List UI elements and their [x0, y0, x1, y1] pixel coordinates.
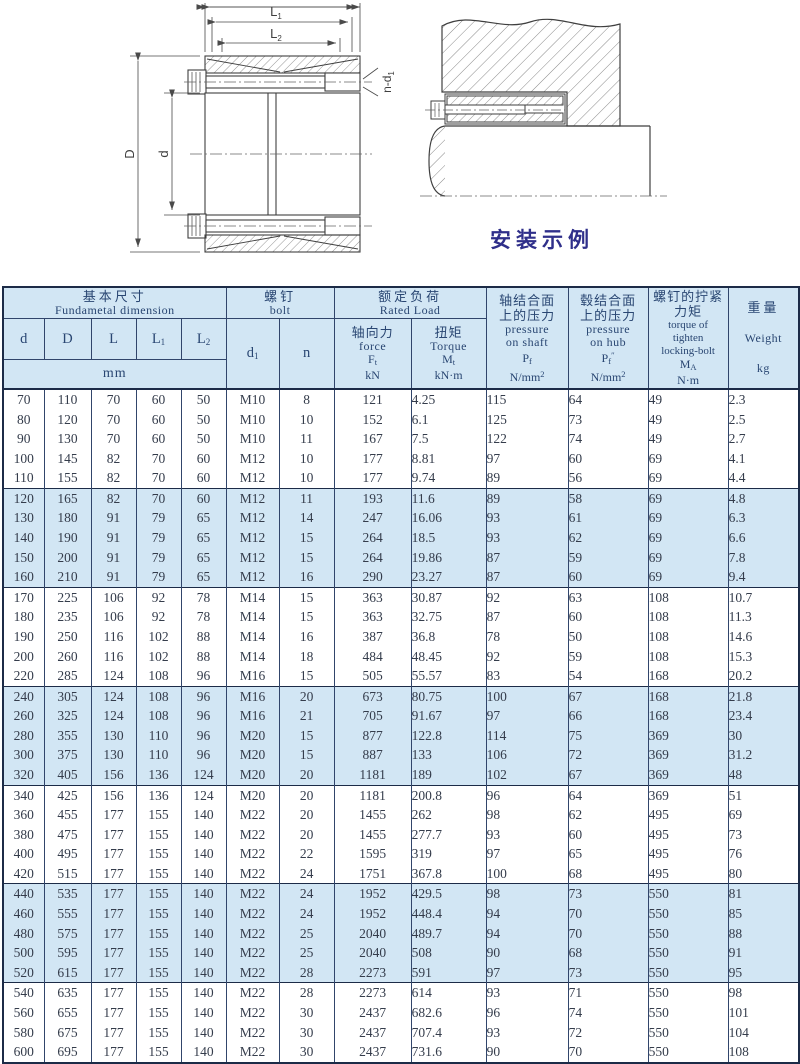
table-cell: 60 [136, 429, 181, 449]
table-cell: 91 [91, 567, 136, 587]
table-cell: 495 [648, 825, 728, 845]
table-cell: 20 [279, 825, 334, 845]
table-cell: 6.6 [728, 528, 799, 548]
table-row: 100145827060M12101778.819760694.1 [3, 449, 799, 469]
header-bolt: 螺钉 bolt [226, 287, 334, 319]
table-cell: M12 [226, 468, 279, 488]
table-cell: 97 [486, 963, 568, 983]
table-cell: 682.6 [411, 1003, 486, 1023]
table-cell: 15 [279, 726, 334, 746]
table-row: 520615177155140M22282273591977355095 [3, 963, 799, 983]
label-bore-diameter: d [156, 150, 171, 157]
table-cell: 78 [181, 587, 226, 607]
table-cell: 300 [3, 745, 44, 765]
table-cell: 97 [486, 449, 568, 469]
table-cell: 200 [44, 548, 91, 568]
table-cell: 1751 [334, 864, 411, 884]
table-cell: 70 [568, 924, 648, 944]
table-cell: M22 [226, 1042, 279, 1063]
table-cell: 290 [334, 567, 411, 587]
table-cell: 18 [279, 647, 334, 667]
header-unit-mm: mm [3, 360, 226, 390]
table-cell: 24 [279, 904, 334, 924]
table-row: 24030512410896M162067380.751006716821.8 [3, 686, 799, 706]
header-col-L1: L1 [136, 319, 181, 360]
table-row: 360455177155140M22201455262986249569 [3, 805, 799, 825]
table-cell: 319 [411, 844, 486, 864]
table-cell: 69 [728, 805, 799, 825]
table-cell: 90 [486, 1042, 568, 1063]
table-cell: 87 [486, 607, 568, 627]
table-cell: 108 [648, 647, 728, 667]
table-cell: 88 [181, 647, 226, 667]
table-cell: 124 [91, 686, 136, 706]
table-cell: 495 [44, 844, 91, 864]
table-row: 28035513011096M2015877122.81147536930 [3, 726, 799, 746]
table-cell: 177 [91, 884, 136, 904]
table-cell: 65 [181, 508, 226, 528]
table-cell: 455 [44, 805, 91, 825]
table-cell: 106 [91, 587, 136, 607]
table-cell: 90 [486, 943, 568, 963]
table-cell: 80 [728, 864, 799, 884]
table-cell: 93 [486, 1023, 568, 1043]
table-cell: 66 [568, 706, 648, 726]
table-cell: 62 [568, 528, 648, 548]
table-cell: 124 [91, 666, 136, 686]
table-cell: 540 [3, 983, 44, 1003]
table-cell: 85 [728, 904, 799, 924]
table-cell: 82 [91, 488, 136, 508]
table-cell: 130 [91, 745, 136, 765]
table-cell: 97 [486, 844, 568, 864]
table-cell: 108 [136, 666, 181, 686]
table-cell: 15 [279, 607, 334, 627]
locking-assembly-in-hub [425, 94, 565, 124]
table-cell: 190 [44, 528, 91, 548]
table-cell: 155 [136, 1003, 181, 1023]
table-cell: 707.4 [411, 1023, 486, 1043]
table-cell: 475 [44, 825, 91, 845]
table-cell: 136 [136, 765, 181, 785]
table-cell: 98 [486, 884, 568, 904]
table-cell: 73 [568, 963, 648, 983]
table-cell: 550 [648, 884, 728, 904]
table-cell: 140 [181, 884, 226, 904]
table-cell: 97 [486, 706, 568, 726]
table-cell: 61 [568, 508, 648, 528]
table-cell: 133 [411, 745, 486, 765]
table-cell: 15 [279, 548, 334, 568]
table-cell: 98 [486, 805, 568, 825]
table-cell: 110 [136, 726, 181, 746]
table-cell: M12 [226, 528, 279, 548]
table-cell: 375 [44, 745, 91, 765]
table-cell: 285 [44, 666, 91, 686]
table-cell: 177 [91, 864, 136, 884]
table-cell: 68 [568, 864, 648, 884]
table-cell: 247 [334, 508, 411, 528]
table-cell: 15 [279, 587, 334, 607]
table-cell: 14.6 [728, 627, 799, 647]
table-cell: 78 [181, 607, 226, 627]
table-cell: 369 [648, 785, 728, 805]
table-cell: 70 [136, 488, 181, 508]
table-cell: 140 [181, 844, 226, 864]
table-cell: 108 [648, 627, 728, 647]
table-cell: 64 [568, 389, 648, 410]
table-row: 30037513011096M20158871331067236931.2 [3, 745, 799, 765]
table-cell: 88 [728, 924, 799, 944]
table-cell: 92 [136, 587, 181, 607]
table-cell: 92 [486, 587, 568, 607]
table-cell: 48 [728, 765, 799, 785]
table-cell: 65 [181, 548, 226, 568]
table-cell: 595 [44, 943, 91, 963]
table-cell: 264 [334, 528, 411, 548]
table-cell: 98 [728, 983, 799, 1003]
table-header: 基本尺寸 Fundametal dimension 螺钉 bolt 额定负荷 R… [3, 287, 799, 389]
label-bolt-holes: n-d1 [380, 71, 396, 93]
table-cell: 15.3 [728, 647, 799, 667]
table-cell: 116 [91, 647, 136, 667]
table-cell: 73 [728, 825, 799, 845]
table-cell: 2040 [334, 924, 411, 944]
table-cell: 155 [136, 864, 181, 884]
table-cell: 91 [91, 508, 136, 528]
table-cell: 140 [181, 805, 226, 825]
table-cell: 21 [279, 706, 334, 726]
table-row: 90130706050M10111677.512274492.7 [3, 429, 799, 449]
header-pressure-on-hub: 毂结合面 上的压力 pressure on hub Pf″ N/mm2 [568, 287, 648, 389]
table-cell: 4.4 [728, 468, 799, 488]
table-row: 20026011610288M141848448.45925910815.3 [3, 647, 799, 667]
table-cell: 550 [648, 1003, 728, 1023]
table-cell: M12 [226, 488, 279, 508]
table-cell: 69 [648, 567, 728, 587]
table-cell: 550 [648, 924, 728, 944]
table-cell: 155 [136, 904, 181, 924]
header-rated-load: 额定负荷 Rated Load [334, 287, 486, 319]
table-cell: 50 [181, 429, 226, 449]
table-cell: 9.74 [411, 468, 486, 488]
table-cell: 36.8 [411, 627, 486, 647]
table-cell: 110 [44, 389, 91, 410]
table-cell: M14 [226, 607, 279, 627]
table-cell: 55.57 [411, 666, 486, 686]
header-col-n: n [279, 319, 334, 390]
table-cell: 180 [3, 607, 44, 627]
table-cell: 193 [334, 488, 411, 508]
table-cell: 550 [648, 1023, 728, 1043]
table-cell: 14 [279, 508, 334, 528]
table-cell: 72 [568, 745, 648, 765]
table-cell: 10 [279, 449, 334, 469]
installation-example-caption: 安装示例 [452, 224, 632, 254]
table-cell: 60 [136, 389, 181, 410]
table-cell: 67 [568, 686, 648, 706]
header-weight: 重量 Weight kg [728, 287, 799, 389]
table-cell: 30 [728, 726, 799, 746]
table-cell: 220 [3, 666, 44, 686]
table-cell: 1181 [334, 765, 411, 785]
table-cell: 11 [279, 429, 334, 449]
table-cell: 2437 [334, 1042, 411, 1063]
table-cell: M20 [226, 765, 279, 785]
table-cell: 130 [44, 429, 91, 449]
table-cell: 122.8 [411, 726, 486, 746]
table-cell: 165 [44, 488, 91, 508]
table-cell: 405 [44, 765, 91, 785]
table-cell: 24 [279, 864, 334, 884]
table-cell: 92 [486, 647, 568, 667]
table-cell: 7.5 [411, 429, 486, 449]
table-cell: M22 [226, 1003, 279, 1023]
table-cell: 560 [3, 1003, 44, 1023]
table-cell: 73 [568, 884, 648, 904]
table-cell: 96 [181, 726, 226, 746]
table-cell: 23.27 [411, 567, 486, 587]
installation-example-drawing [415, 4, 685, 219]
table-cell: 400 [3, 844, 44, 864]
table-cell: M10 [226, 389, 279, 410]
table-cell: 10 [279, 468, 334, 488]
table-row: 1702251069278M141536330.87926310810.7 [3, 587, 799, 607]
table-cell: 250 [44, 627, 91, 647]
table-cell: 70 [91, 429, 136, 449]
table-cell: 387 [334, 627, 411, 647]
table-row: 340425156136124M20201181200.8966436951 [3, 785, 799, 805]
table-cell: 104 [728, 1023, 799, 1043]
table-row: 80120706050M10101526.112573492.5 [3, 410, 799, 430]
table-cell: 1952 [334, 884, 411, 904]
table-cell: 2273 [334, 983, 411, 1003]
table-cell: 1455 [334, 805, 411, 825]
table-cell: 16 [279, 627, 334, 647]
table-row: 540635177155140M22282273614937155098 [3, 983, 799, 1003]
table-cell: 155 [136, 805, 181, 825]
table-cell: 74 [568, 429, 648, 449]
table-cell: 69 [648, 548, 728, 568]
table-cell: M22 [226, 943, 279, 963]
table-cell: 177 [91, 983, 136, 1003]
label-l1: L1 [270, 4, 282, 21]
table-cell: 106 [486, 745, 568, 765]
table-cell: 50 [181, 410, 226, 430]
table-cell: 130 [91, 726, 136, 746]
table-cell: 20 [279, 805, 334, 825]
table-cell: 24 [279, 884, 334, 904]
table-cell: 72 [568, 1023, 648, 1043]
table-cell: 363 [334, 587, 411, 607]
table-cell: 106 [91, 607, 136, 627]
table-cell: 93 [486, 508, 568, 528]
table-cell: 32.75 [411, 607, 486, 627]
table-cell: 60 [568, 567, 648, 587]
table-cell: M22 [226, 963, 279, 983]
table-cell: 277.7 [411, 825, 486, 845]
table-cell: 62 [568, 805, 648, 825]
table-cell: 60 [181, 449, 226, 469]
table-cell: 4.1 [728, 449, 799, 469]
table-row: 440535177155140M22241952429.5987355081 [3, 884, 799, 904]
table-cell: 31.2 [728, 745, 799, 765]
table-cell: 50 [568, 627, 648, 647]
table-row: 320405156136124M202011811891026736948 [3, 765, 799, 785]
table-cell: 56 [568, 468, 648, 488]
table-cell: 170 [3, 587, 44, 607]
table-cell: 495 [648, 805, 728, 825]
table-cell: 260 [44, 647, 91, 667]
table-row: 130180917965M121424716.069361696.3 [3, 508, 799, 528]
table-cell: 167 [334, 429, 411, 449]
table-cell: 69 [648, 528, 728, 548]
table-cell: M22 [226, 884, 279, 904]
table-cell: 49 [648, 389, 728, 410]
table-cell: 90 [3, 429, 44, 449]
table-cell: 240 [3, 686, 44, 706]
header-col-d: d [3, 319, 44, 360]
table-cell: 114 [486, 726, 568, 746]
table-cell: 140 [181, 825, 226, 845]
table-cell: M20 [226, 745, 279, 765]
table-cell: 20 [279, 785, 334, 805]
table-cell: 550 [648, 963, 728, 983]
table-cell: 140 [181, 1042, 226, 1063]
table-cell: 101 [728, 1003, 799, 1023]
table-cell: 19.86 [411, 548, 486, 568]
table-cell: 122 [486, 429, 568, 449]
label-l2: L2 [270, 26, 282, 43]
table-cell: 96 [486, 1003, 568, 1023]
table-cell: 355 [44, 726, 91, 746]
table-cell: 7.8 [728, 548, 799, 568]
table-cell: 1595 [334, 844, 411, 864]
table-cell: 575 [44, 924, 91, 944]
table-cell: M10 [226, 429, 279, 449]
table-cell: 600 [3, 1042, 44, 1063]
table-cell: 102 [486, 765, 568, 785]
table-cell: 210 [44, 567, 91, 587]
table-cell: 30 [279, 1042, 334, 1063]
table-cell: 180 [44, 508, 91, 528]
table-cell: 96 [181, 745, 226, 765]
table-cell: 177 [91, 825, 136, 845]
table-cell: 60 [568, 607, 648, 627]
table-cell: M16 [226, 686, 279, 706]
table-cell: 325 [44, 706, 91, 726]
table-cell: M12 [226, 548, 279, 568]
table-cell: 82 [91, 468, 136, 488]
table-cell: 80 [3, 410, 44, 430]
table-cell: 96 [181, 666, 226, 686]
table-cell: 69 [648, 449, 728, 469]
table-cell: 60 [181, 468, 226, 488]
table-cell: 70 [136, 468, 181, 488]
table-cell: 177 [91, 904, 136, 924]
table-cell: 96 [486, 785, 568, 805]
table-cell: 484 [334, 647, 411, 667]
table-cell: 125 [486, 410, 568, 430]
table-cell: 124 [91, 706, 136, 726]
table-cell: 515 [44, 864, 91, 884]
table-cell: 58 [568, 488, 648, 508]
table-row: 460555177155140M22241952448.4947055085 [3, 904, 799, 924]
table-cell: 108 [728, 1042, 799, 1063]
table-cell: 1455 [334, 825, 411, 845]
table-cell: 16 [279, 567, 334, 587]
table-cell: 108 [648, 587, 728, 607]
table-row: 600695177155140M22302437731.69070550108 [3, 1042, 799, 1063]
table-row: 1802351069278M141536332.75876010811.3 [3, 607, 799, 627]
table-cell: 88 [181, 627, 226, 647]
table-cell: 20 [279, 686, 334, 706]
table-row: 110155827060M12101779.748956694.4 [3, 468, 799, 488]
table-cell: 614 [411, 983, 486, 1003]
table-cell: 550 [648, 943, 728, 963]
table-cell: 120 [44, 410, 91, 430]
table-cell: 70 [3, 389, 44, 410]
table-cell: 190 [3, 627, 44, 647]
table-cell: 73 [568, 410, 648, 430]
table-cell: M10 [226, 410, 279, 430]
table-cell: 48.45 [411, 647, 486, 667]
table-cell: 177 [91, 963, 136, 983]
table-cell: 65 [181, 567, 226, 587]
table-cell: 28 [279, 983, 334, 1003]
label-outer-diameter: D [122, 149, 137, 158]
table-cell: 70 [91, 410, 136, 430]
table-cell: M22 [226, 805, 279, 825]
table-cell: 500 [3, 943, 44, 963]
table-cell: 71 [568, 983, 648, 1003]
table-cell: 320 [3, 765, 44, 785]
table-cell: 96 [181, 706, 226, 726]
table-cell: 264 [334, 548, 411, 568]
table-cell: 505 [334, 666, 411, 686]
table-cell: 22 [279, 844, 334, 864]
table-cell: 140 [181, 864, 226, 884]
table-cell: 140 [181, 983, 226, 1003]
table-cell: 380 [3, 825, 44, 845]
table-cell: 65 [568, 844, 648, 864]
table-cell: 155 [136, 844, 181, 864]
table-cell: 367.8 [411, 864, 486, 884]
table-cell: 369 [648, 745, 728, 765]
table-cell: 140 [181, 943, 226, 963]
table-cell: 20 [279, 765, 334, 785]
table-cell: 92 [136, 607, 181, 627]
table-cell: 155 [136, 943, 181, 963]
table-cell: 91.67 [411, 706, 486, 726]
table-cell: 177 [91, 1042, 136, 1063]
table-row: 22028512410896M161550555.57835416820.2 [3, 666, 799, 686]
table-row: 26032512410896M162170591.67976616823.4 [3, 706, 799, 726]
table-cell: 76 [728, 844, 799, 864]
table-body: 70110706050M1081214.2511564492.380120706… [3, 389, 799, 1063]
table-cell: 448.4 [411, 904, 486, 924]
table-cell: M22 [226, 825, 279, 845]
table-row: 560655177155140M22302437682.69674550101 [3, 1003, 799, 1023]
table-cell: M14 [226, 647, 279, 667]
table-cell: 78 [486, 627, 568, 647]
table-cell: 115 [486, 389, 568, 410]
table-cell: 50 [181, 389, 226, 410]
table-row: 120165827060M121119311.68958694.8 [3, 488, 799, 508]
table-cell: 580 [3, 1023, 44, 1043]
table-cell: 108 [136, 706, 181, 726]
table-cell: 440 [3, 884, 44, 904]
